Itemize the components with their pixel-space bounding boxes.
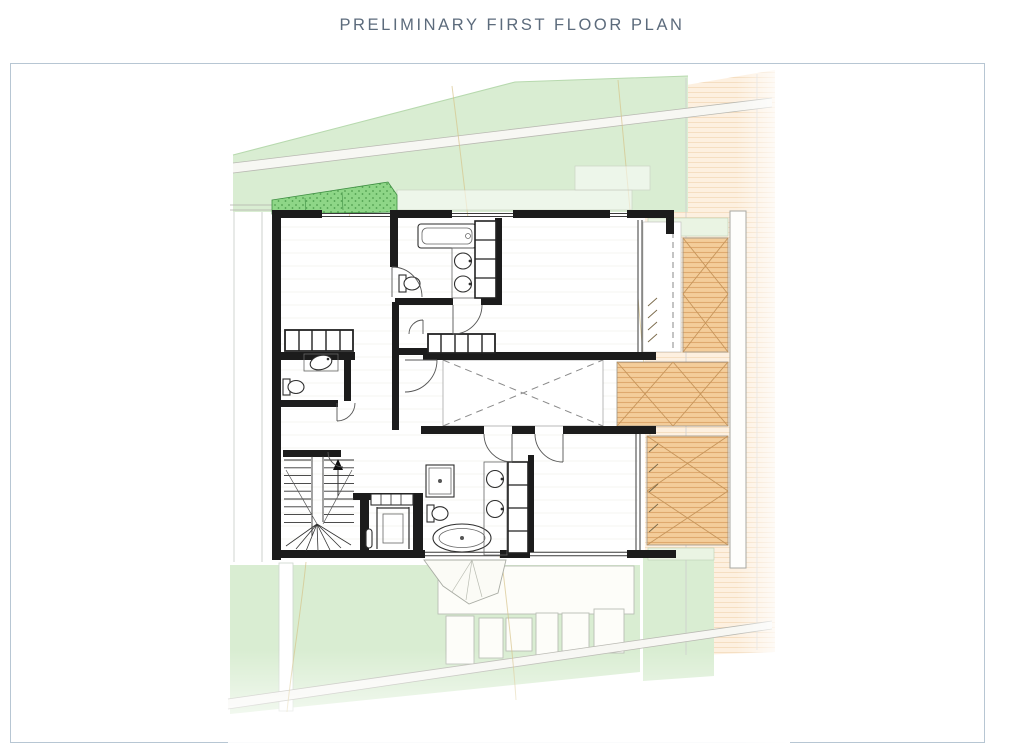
void-opening: [443, 360, 603, 426]
bathtub: [418, 224, 476, 248]
house-plan: [272, 182, 746, 604]
shelving-column: [508, 462, 528, 553]
deck-bottom: [647, 436, 728, 545]
toilet: [427, 505, 448, 522]
page: PRELIMINARY FIRST FLOOR PLAN: [0, 0, 1024, 753]
deck-middle: [617, 362, 728, 426]
terrace-threshold: [643, 222, 681, 352]
shower: [426, 465, 454, 497]
freestanding-bathtub: [433, 524, 491, 552]
shelving-column: [475, 221, 496, 298]
floor-plan-drawing: [0, 0, 1024, 753]
wardrobe-row: [285, 330, 353, 351]
deck-top: [683, 238, 728, 352]
wardrobe-row: [428, 334, 495, 353]
toilet: [283, 379, 304, 395]
privacy-screen: [730, 211, 746, 568]
roof-overhang-outline: [397, 190, 632, 210]
roof-overhang-outline: [575, 166, 650, 190]
bottom-fade: [228, 650, 790, 750]
